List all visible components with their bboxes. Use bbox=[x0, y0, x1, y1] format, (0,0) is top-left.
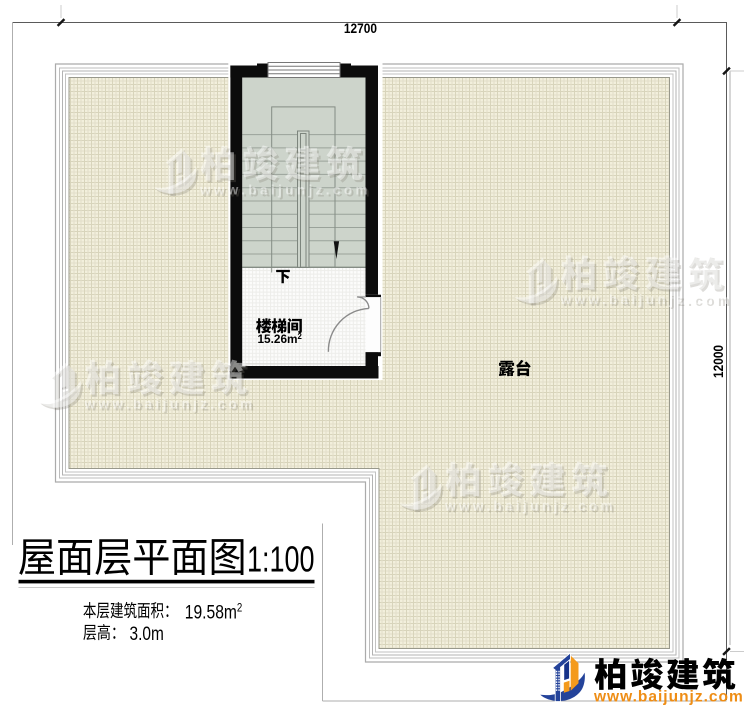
svg-text:www.baijunjz.com: www.baijunjz.com bbox=[593, 689, 744, 706]
svg-text:15.26m2: 15.26m2 bbox=[258, 332, 303, 346]
svg-text:www.baijunjz.com: www.baijunjz.com bbox=[199, 183, 371, 198]
svg-text:19.58m2: 19.58m2 bbox=[185, 601, 243, 623]
svg-text:12700: 12700 bbox=[344, 20, 377, 36]
svg-text:www.baijunjz.com: www.baijunjz.com bbox=[444, 499, 616, 514]
svg-text:3.0m: 3.0m bbox=[130, 622, 164, 644]
svg-text:www.baijunjz.com: www.baijunjz.com bbox=[84, 397, 256, 412]
svg-text:12000: 12000 bbox=[710, 345, 726, 378]
svg-text:www.baijunjz.com: www.baijunjz.com bbox=[560, 292, 732, 307]
svg-text:1:100: 1:100 bbox=[247, 539, 315, 580]
